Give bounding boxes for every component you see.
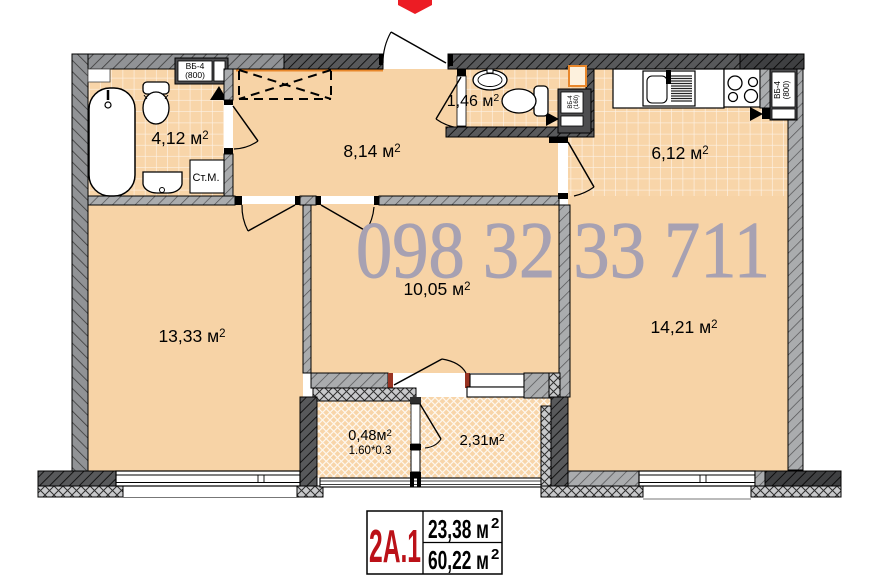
svg-text:8,14 м2: 8,14 м2 xyxy=(343,141,400,161)
svg-text:0,48м2: 0,48м2 xyxy=(348,428,392,444)
svg-text:1.60*0.3: 1.60*0.3 xyxy=(349,445,392,457)
svg-text:ВБ-4: ВБ-4 xyxy=(773,81,782,99)
svg-text:60,22 м: 60,22 м xyxy=(428,545,489,575)
svg-text:2: 2 xyxy=(491,515,499,532)
svg-text:098 32 33 711: 098 32 33 711 xyxy=(356,207,770,295)
svg-text:(160): (160) xyxy=(574,95,580,109)
svg-text:1,46 м2: 1,46 м2 xyxy=(447,92,500,110)
svg-text:2,31м2: 2,31м2 xyxy=(459,432,505,449)
svg-text:13,33 м2: 13,33 м2 xyxy=(158,326,225,346)
svg-text:(800): (800) xyxy=(782,80,791,99)
svg-text:(800): (800) xyxy=(185,70,205,80)
svg-text:Ст.М.: Ст.М. xyxy=(192,172,219,184)
svg-text:14,21 м2: 14,21 м2 xyxy=(650,317,717,337)
svg-text:2: 2 xyxy=(491,546,499,563)
svg-text:2А.1: 2А.1 xyxy=(369,520,421,572)
svg-text:23,38 м: 23,38 м xyxy=(428,514,489,544)
svg-text:6,12 м2: 6,12 м2 xyxy=(651,143,708,163)
svg-text:4,12 м2: 4,12 м2 xyxy=(151,128,208,148)
